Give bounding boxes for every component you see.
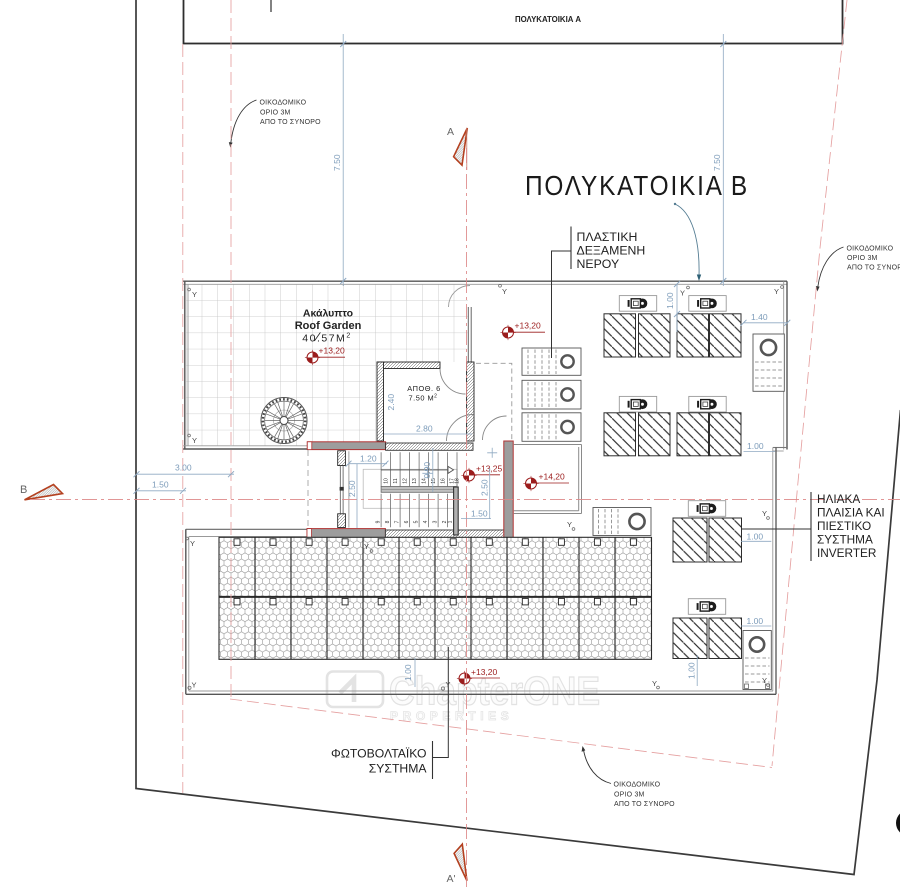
svg-text:1.00: 1.00 bbox=[747, 616, 764, 626]
svg-text:1.40: 1.40 bbox=[751, 312, 768, 322]
svg-text:ΟΙΚΟΔΟΜΙΚΟ: ΟΙΚΟΔΟΜΙΚΟ bbox=[847, 246, 894, 253]
svg-text:ΑΠΟ ΤΟ ΣΥΝΟΡΟ: ΑΠΟ ΤΟ ΣΥΝΟΡΟ bbox=[614, 801, 675, 808]
svg-text:6: 6 bbox=[404, 520, 410, 523]
svg-text:1.50: 1.50 bbox=[471, 509, 488, 519]
svg-text:5: 5 bbox=[414, 520, 420, 523]
svg-text:16: 16 bbox=[441, 478, 447, 484]
svg-text:ΠΛΑΙΣΙΑ ΚΑΙ: ΠΛΑΙΣΙΑ ΚΑΙ bbox=[817, 506, 885, 520]
svg-text:ΟΙΚΟΔΟΜΙΚΟ: ΟΙΚΟΔΟΜΙΚΟ bbox=[614, 782, 661, 789]
svg-text:1.20: 1.20 bbox=[360, 454, 377, 464]
svg-text:Y: Y bbox=[446, 680, 451, 689]
svg-text:Y: Y bbox=[762, 676, 767, 685]
svg-text:Y: Y bbox=[774, 287, 779, 296]
svg-text:ΟΙΚΟΔΟΜΙΚΟ: ΟΙΚΟΔΟΜΙΚΟ bbox=[260, 100, 307, 107]
svg-text:+13,25: +13,25 bbox=[476, 464, 503, 474]
svg-text:ΝΕΡΟΥ: ΝΕΡΟΥ bbox=[577, 257, 620, 271]
svg-text:INVERTER: INVERTER bbox=[817, 546, 876, 560]
svg-text:A: A bbox=[447, 126, 454, 138]
svg-text:9: 9 bbox=[376, 520, 382, 523]
svg-text:1.00: 1.00 bbox=[747, 441, 764, 451]
svg-text:Y: Y bbox=[680, 289, 685, 298]
svg-text:7: 7 bbox=[395, 520, 401, 523]
svg-text:ΗΛΙΑΚΑ: ΗΛΙΑΚΑ bbox=[817, 492, 860, 506]
svg-text:10: 10 bbox=[384, 478, 390, 484]
svg-text:ΠΟΛΥΚΑΤΟΙΚΙΑ Β: ΠΟΛΥΚΑΤΟΙΚΙΑ Β bbox=[525, 170, 749, 201]
svg-text:ΔΕΞΑΜΕΝΗ: ΔΕΞΑΜΕΝΗ bbox=[577, 244, 646, 258]
svg-text:3.00: 3.00 bbox=[175, 463, 192, 473]
svg-text:PROPERTIES: PROPERTIES bbox=[390, 709, 513, 723]
svg-text:ΣΥΣΤΗΜΑ: ΣΥΣΤΗΜΑ bbox=[817, 533, 873, 547]
svg-text:Y: Y bbox=[190, 539, 195, 548]
svg-text:ΠΛΑΣΤΙΚΗ: ΠΛΑΣΤΙΚΗ bbox=[577, 230, 638, 244]
svg-text:Y: Y bbox=[192, 290, 197, 299]
svg-text:ΑΠΟ ΤΟ ΣΥΝΟΡΟ: ΑΠΟ ΤΟ ΣΥΝΟΡΟ bbox=[260, 119, 321, 126]
svg-text:ΟΡΙΟ 3Μ: ΟΡΙΟ 3Μ bbox=[614, 792, 645, 799]
svg-text:40.57M2: 40.57M2 bbox=[302, 333, 351, 345]
svg-text:Y: Y bbox=[502, 287, 507, 296]
svg-text:1.00: 1.00 bbox=[687, 662, 697, 679]
svg-text:ΟΡΙΟ 3Μ: ΟΡΙΟ 3Μ bbox=[260, 110, 291, 117]
svg-text:7.50: 7.50 bbox=[332, 154, 342, 171]
svg-text:+14,20: +14,20 bbox=[539, 472, 566, 482]
svg-text:13: 13 bbox=[412, 478, 418, 484]
svg-text:2.40: 2.40 bbox=[386, 394, 396, 411]
svg-text:ΠΙΕΣΤΙΚΟ: ΠΙΕΣΤΙΚΟ bbox=[817, 519, 871, 533]
svg-text:7.50 Μ2: 7.50 Μ2 bbox=[409, 394, 438, 403]
svg-text:Y: Y bbox=[192, 436, 197, 445]
svg-text:Y: Y bbox=[762, 509, 767, 518]
svg-text:2.50: 2.50 bbox=[480, 479, 490, 496]
svg-text:4: 4 bbox=[423, 520, 429, 523]
svg-text:+13,20: +13,20 bbox=[471, 667, 498, 677]
svg-text:7.50: 7.50 bbox=[712, 154, 722, 171]
svg-text:B: B bbox=[20, 484, 27, 496]
svg-text:ΟΡΙΟ 3Μ: ΟΡΙΟ 3Μ bbox=[847, 255, 878, 262]
svg-text:1.00: 1.00 bbox=[665, 292, 675, 309]
svg-text:12: 12 bbox=[403, 478, 409, 484]
svg-text:ΦΩΤΟΒΟΛΤΑΪΚΟ: ΦΩΤΟΒΟΛΤΑΪΚΟ bbox=[331, 747, 426, 761]
svg-text:1.00: 1.00 bbox=[747, 532, 764, 542]
svg-text:11: 11 bbox=[393, 478, 399, 483]
svg-text:Y: Y bbox=[652, 679, 657, 688]
svg-text:8: 8 bbox=[385, 520, 391, 523]
svg-text:1.00: 1.00 bbox=[403, 664, 413, 681]
svg-text:Y: Y bbox=[192, 681, 197, 690]
svg-text:ΠΟΛΥΚΑΤΟΙΚΙΑ Α: ΠΟΛΥΚΑΤΟΙΚΙΑ Α bbox=[515, 15, 581, 24]
svg-text:Roof Garden: Roof Garden bbox=[295, 320, 362, 332]
svg-text:0.90: 0.90 bbox=[422, 462, 432, 479]
svg-text:ΑΠΟΘ. 6: ΑΠΟΘ. 6 bbox=[407, 384, 440, 393]
svg-text:1.50: 1.50 bbox=[152, 480, 169, 490]
svg-text:Y: Y bbox=[364, 542, 369, 551]
svg-text:+13,20: +13,20 bbox=[319, 346, 346, 356]
svg-text:2.80: 2.80 bbox=[416, 424, 433, 434]
svg-text:Y: Y bbox=[567, 520, 572, 529]
svg-text:A': A' bbox=[447, 873, 456, 885]
svg-text:+13,20: +13,20 bbox=[515, 321, 542, 331]
svg-text:2.50: 2.50 bbox=[347, 480, 357, 497]
svg-text:ΑΠΟ ΤΟ ΣΥΝΟΡΟ: ΑΠΟ ΤΟ ΣΥΝΟΡΟ bbox=[847, 265, 900, 272]
svg-text:1: 1 bbox=[448, 520, 454, 523]
svg-text:18: 18 bbox=[455, 478, 461, 484]
svg-text:3: 3 bbox=[433, 520, 439, 523]
svg-text:ΣΥΣΤΗΜΑ: ΣΥΣΤΗΜΑ bbox=[369, 762, 428, 776]
svg-text:Ακάλυπτο: Ακάλυπτο bbox=[303, 308, 353, 320]
